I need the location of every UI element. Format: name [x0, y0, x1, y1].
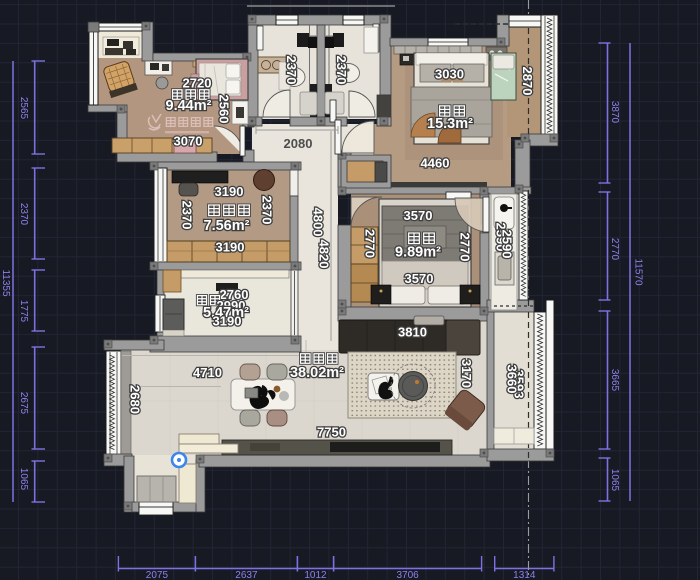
svg-text:7750: 7750 — [317, 425, 346, 440]
svg-text:1012: 1012 — [304, 570, 327, 580]
svg-text:2370: 2370 — [260, 196, 275, 225]
svg-text:3665: 3665 — [609, 369, 620, 392]
svg-text:2565: 2565 — [18, 97, 29, 120]
svg-text:3170: 3170 — [459, 359, 474, 388]
svg-text:4820: 4820 — [317, 240, 332, 269]
svg-text:1314: 1314 — [513, 570, 536, 580]
svg-text:4800: 4800 — [311, 208, 326, 237]
svg-text:3190: 3190 — [213, 313, 242, 328]
svg-text:9.89m²: 9.89m² — [395, 245, 441, 261]
svg-text:3190: 3190 — [215, 184, 244, 199]
svg-text:2075: 2075 — [146, 570, 169, 580]
svg-text:2870: 2870 — [520, 67, 535, 96]
svg-text:3706: 3706 — [396, 570, 419, 580]
svg-text:9.44m²: 9.44m² — [166, 98, 212, 114]
svg-text:2637: 2637 — [235, 570, 258, 580]
svg-text:3030: 3030 — [435, 67, 464, 82]
svg-text:38.02m²: 38.02m² — [290, 365, 344, 381]
svg-text:2370: 2370 — [180, 201, 195, 230]
svg-text:3570: 3570 — [405, 271, 434, 286]
svg-text:2560: 2560 — [217, 95, 232, 124]
svg-text:1065: 1065 — [18, 468, 29, 491]
svg-text:2770: 2770 — [609, 238, 620, 261]
svg-text:2770: 2770 — [458, 233, 473, 262]
svg-text:3070: 3070 — [174, 134, 203, 149]
svg-text:3870: 3870 — [609, 101, 620, 124]
svg-text:11355: 11355 — [0, 269, 11, 297]
svg-text:1775: 1775 — [18, 300, 29, 323]
svg-text:11570: 11570 — [633, 258, 644, 286]
svg-text:4460: 4460 — [421, 156, 450, 171]
svg-text:2675: 2675 — [18, 392, 29, 415]
svg-text:2370: 2370 — [334, 56, 349, 85]
svg-text:3660: 3660 — [505, 365, 520, 394]
svg-text:3190: 3190 — [216, 240, 245, 255]
svg-text:2770: 2770 — [363, 229, 378, 258]
svg-text:2370: 2370 — [18, 203, 29, 226]
svg-text:1065: 1065 — [609, 469, 620, 492]
svg-text:3810: 3810 — [398, 325, 427, 340]
svg-text:2370: 2370 — [284, 56, 299, 85]
svg-text:4710: 4710 — [193, 365, 222, 380]
svg-text:15.3m²: 15.3m² — [427, 116, 473, 132]
svg-text:2680: 2680 — [128, 385, 143, 414]
svg-text:3570: 3570 — [404, 208, 433, 223]
svg-text:2080: 2080 — [284, 136, 313, 151]
svg-text:2590: 2590 — [500, 230, 515, 259]
svg-text:7.56m²: 7.56m² — [204, 218, 250, 234]
